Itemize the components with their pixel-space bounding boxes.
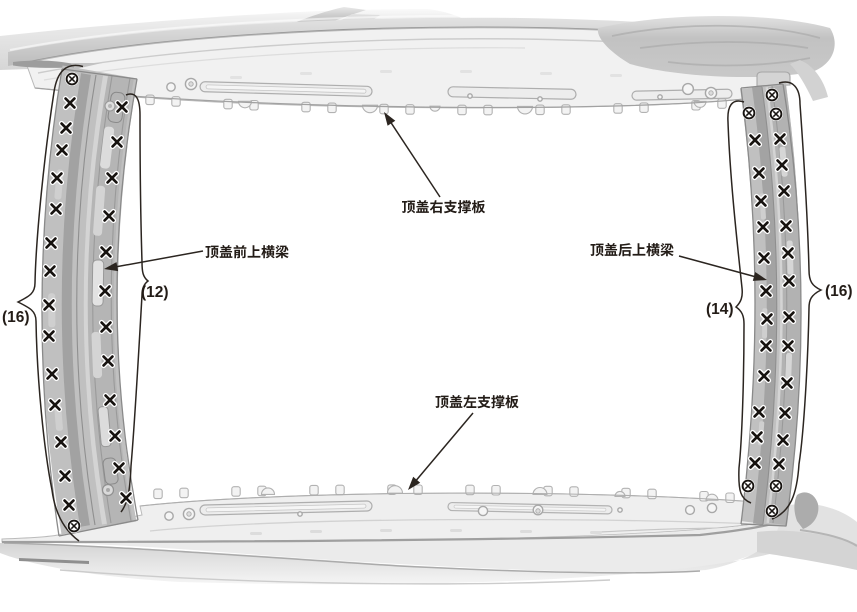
svg-text:(16): (16) [2, 309, 30, 326]
svg-text:(12): (12) [141, 284, 169, 301]
svg-text:(16): (16) [825, 283, 853, 300]
svg-text:(14): (14) [706, 301, 734, 318]
